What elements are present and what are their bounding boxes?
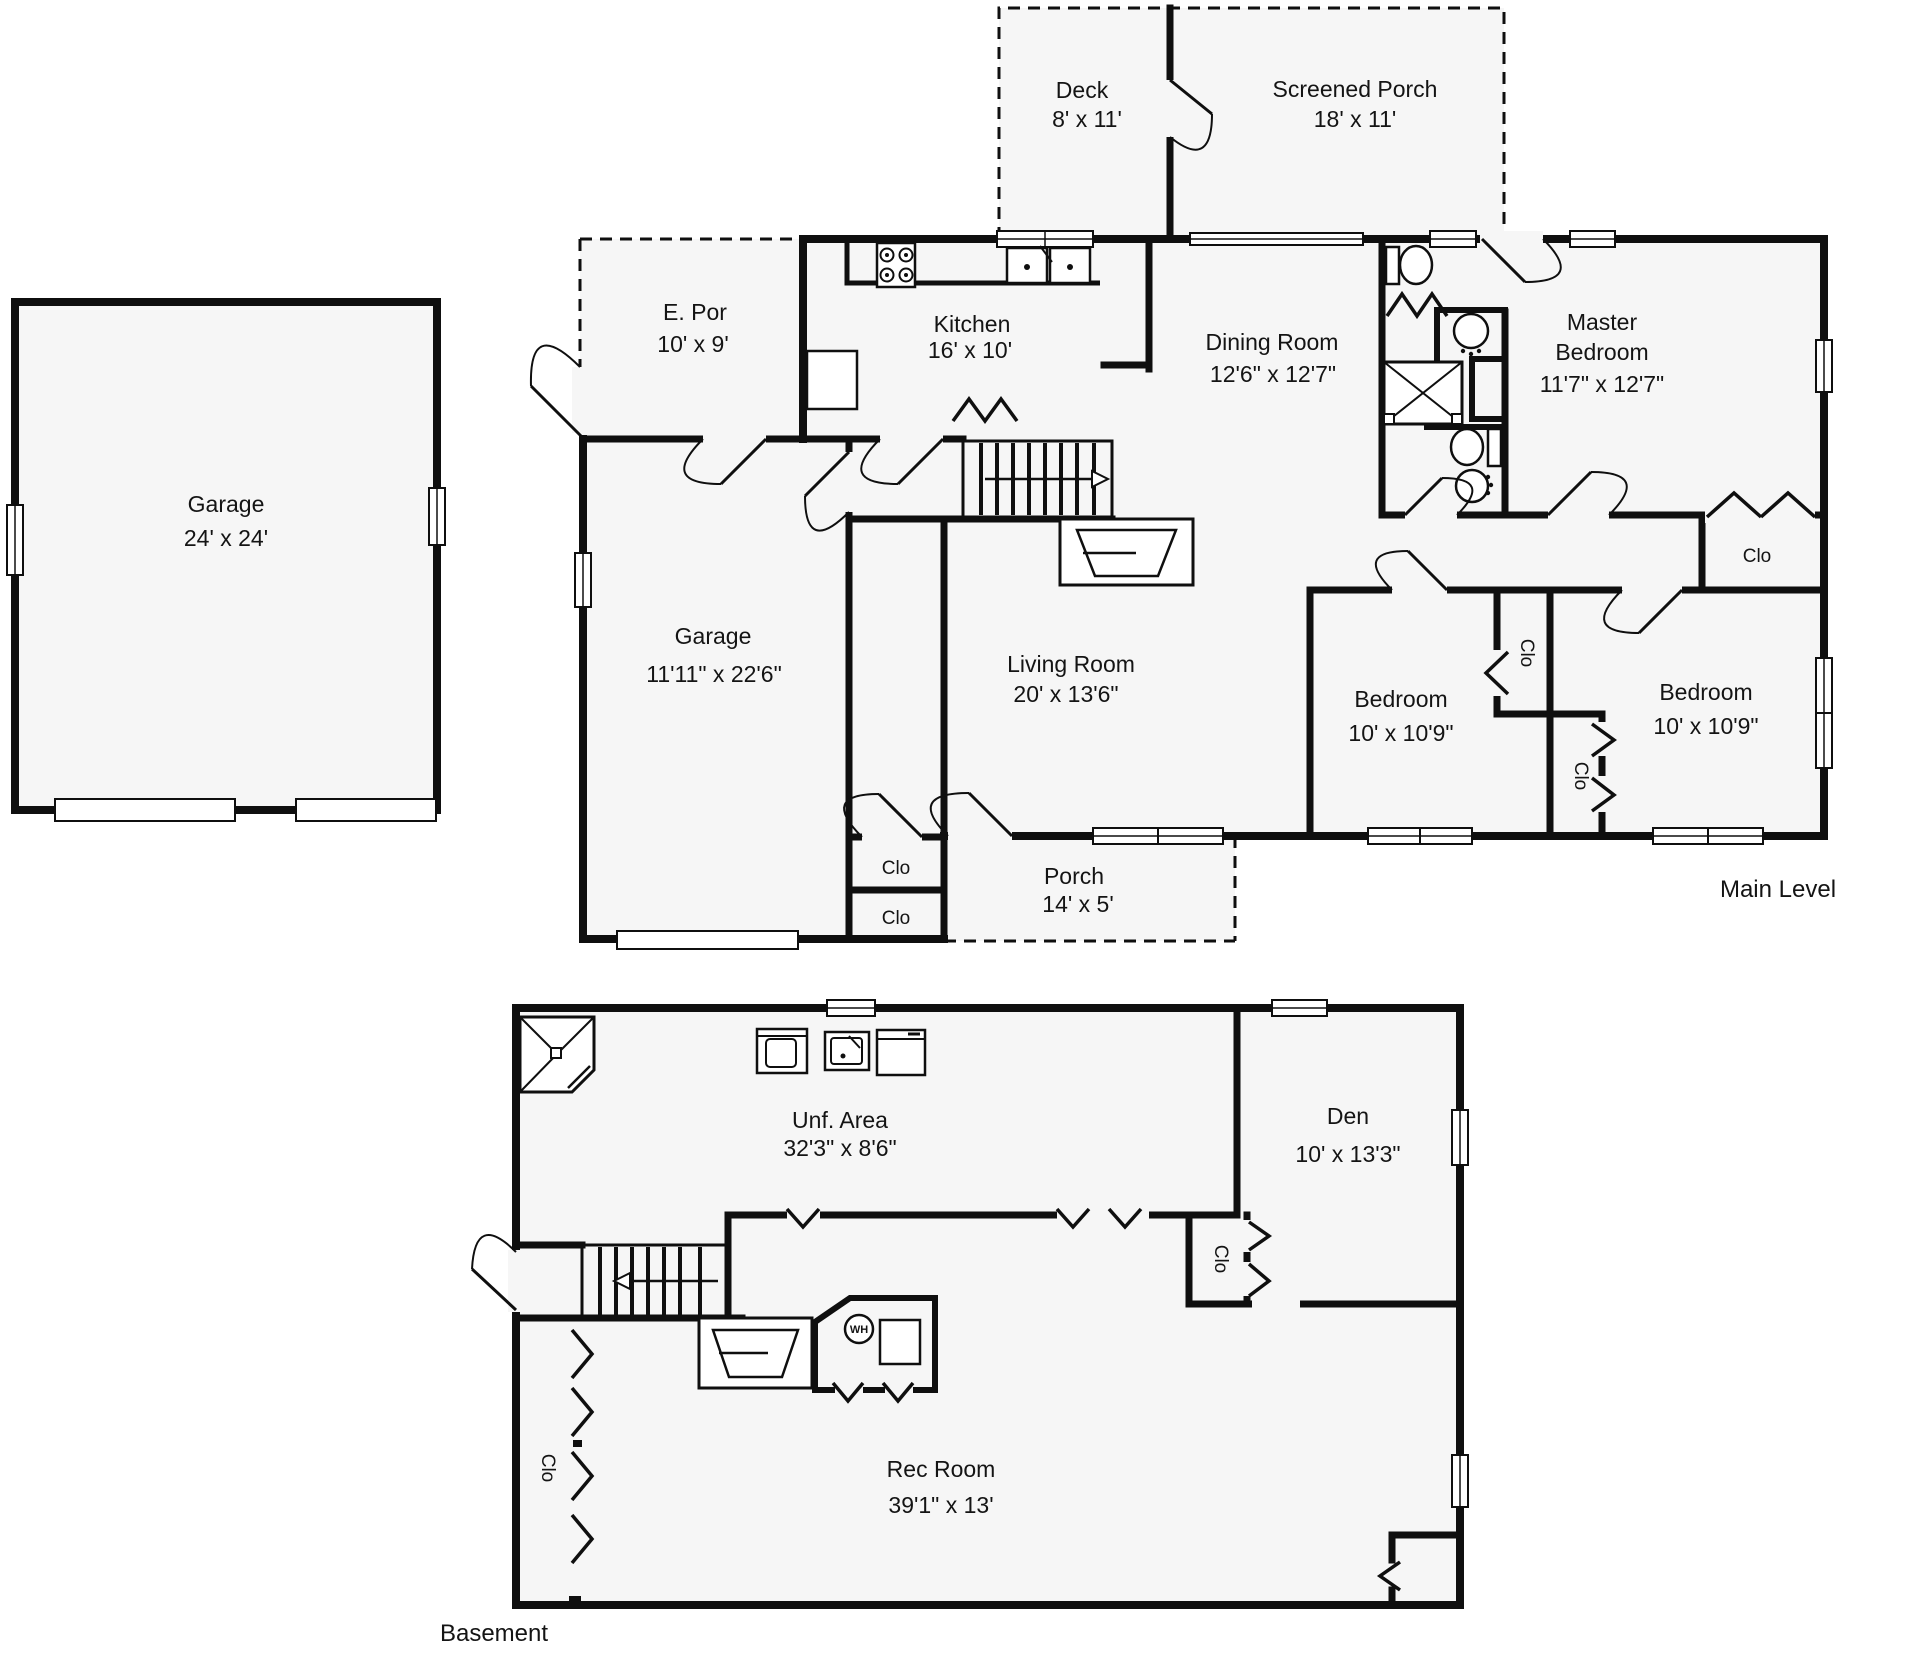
room-label-rec-room: Rec Room xyxy=(887,1456,996,1482)
closet-label-entry-1: Clo xyxy=(882,858,911,879)
furnace xyxy=(880,1320,920,1364)
water-heater-label: WH xyxy=(850,1324,868,1336)
room-label-garage-attached: Garage xyxy=(675,623,752,649)
room-label-kitchen: Kitchen xyxy=(934,311,1011,337)
room-dims-e-por: 10' x 9' xyxy=(657,331,728,357)
fireplace-basement xyxy=(699,1318,812,1388)
room-label-screened-porch: Screened Porch xyxy=(1273,76,1438,102)
caption-basement: Basement xyxy=(440,1620,548,1647)
room-label-dining: Dining Room xyxy=(1206,329,1339,355)
room-dims-unf-area: 32'3" x 8'6" xyxy=(783,1135,896,1161)
laundry-sink xyxy=(825,1032,869,1070)
room-label-living: Living Room xyxy=(1007,651,1135,677)
floor-plan-svg: Deck 8' x 11' Screened Porch 18' x 11' E… xyxy=(0,0,1913,1658)
room-dims-dining: 12'6" x 12'7" xyxy=(1210,361,1336,387)
closet-label-den: Clo xyxy=(1210,1245,1231,1274)
room-label-deck: Deck xyxy=(1056,77,1109,103)
room-label-e-por: E. Por xyxy=(663,299,727,325)
floor-plan-page: Deck 8' x 11' Screened Porch 18' x 11' E… xyxy=(0,0,1913,1658)
room-label-bedroom1: Bedroom xyxy=(1354,686,1447,712)
room-dims-screened-porch: 18' x 11' xyxy=(1314,106,1397,132)
closet-label-entry-2: Clo xyxy=(882,908,911,929)
room-dims-den: 10' x 13'3" xyxy=(1295,1141,1400,1167)
room-dims-deck: 8' x 11' xyxy=(1052,106,1122,132)
basement-shower xyxy=(520,1017,594,1092)
room-label-garage-detached: Garage xyxy=(188,491,265,517)
room-dims-garage-attached: 11'11" x 22'6" xyxy=(646,661,782,687)
caption-main-level: Main Level xyxy=(1720,876,1836,903)
room-label-bedroom2: Bedroom xyxy=(1659,679,1752,705)
closet-label-a: Clo xyxy=(1516,639,1537,668)
room-dims-living: 20' x 13'6" xyxy=(1013,681,1118,707)
room-dims-bedroom2: 10' x 10'9" xyxy=(1653,713,1758,739)
dryer xyxy=(877,1030,925,1075)
room-dims-garage-detached: 24' x 24' xyxy=(184,525,268,551)
room-dims-porch: 14' x 5' xyxy=(1042,891,1113,917)
room-dims-master: 11'7" x 12'7" xyxy=(1540,371,1664,397)
refrigerator xyxy=(807,351,857,409)
room-label-master-2: Bedroom xyxy=(1555,339,1648,365)
room-label-porch: Porch xyxy=(1044,863,1104,889)
stove xyxy=(877,243,915,287)
room-dims-kitchen: 16' x 10' xyxy=(928,337,1012,363)
washer xyxy=(757,1029,807,1073)
room-dims-rec-room: 39'1" x 13' xyxy=(888,1492,993,1518)
closet-label-basement-left: Clo xyxy=(537,1454,558,1483)
closet-label-b: Clo xyxy=(1570,762,1591,791)
room-dims-bedroom1: 10' x 10'9" xyxy=(1348,720,1453,746)
room-label-den: Den xyxy=(1327,1103,1369,1129)
room-label-unf-area: Unf. Area xyxy=(792,1107,888,1133)
room-label-master-1: Master xyxy=(1567,309,1638,335)
closet-label-master: Clo xyxy=(1743,546,1772,567)
fireplace-main xyxy=(1060,519,1193,585)
